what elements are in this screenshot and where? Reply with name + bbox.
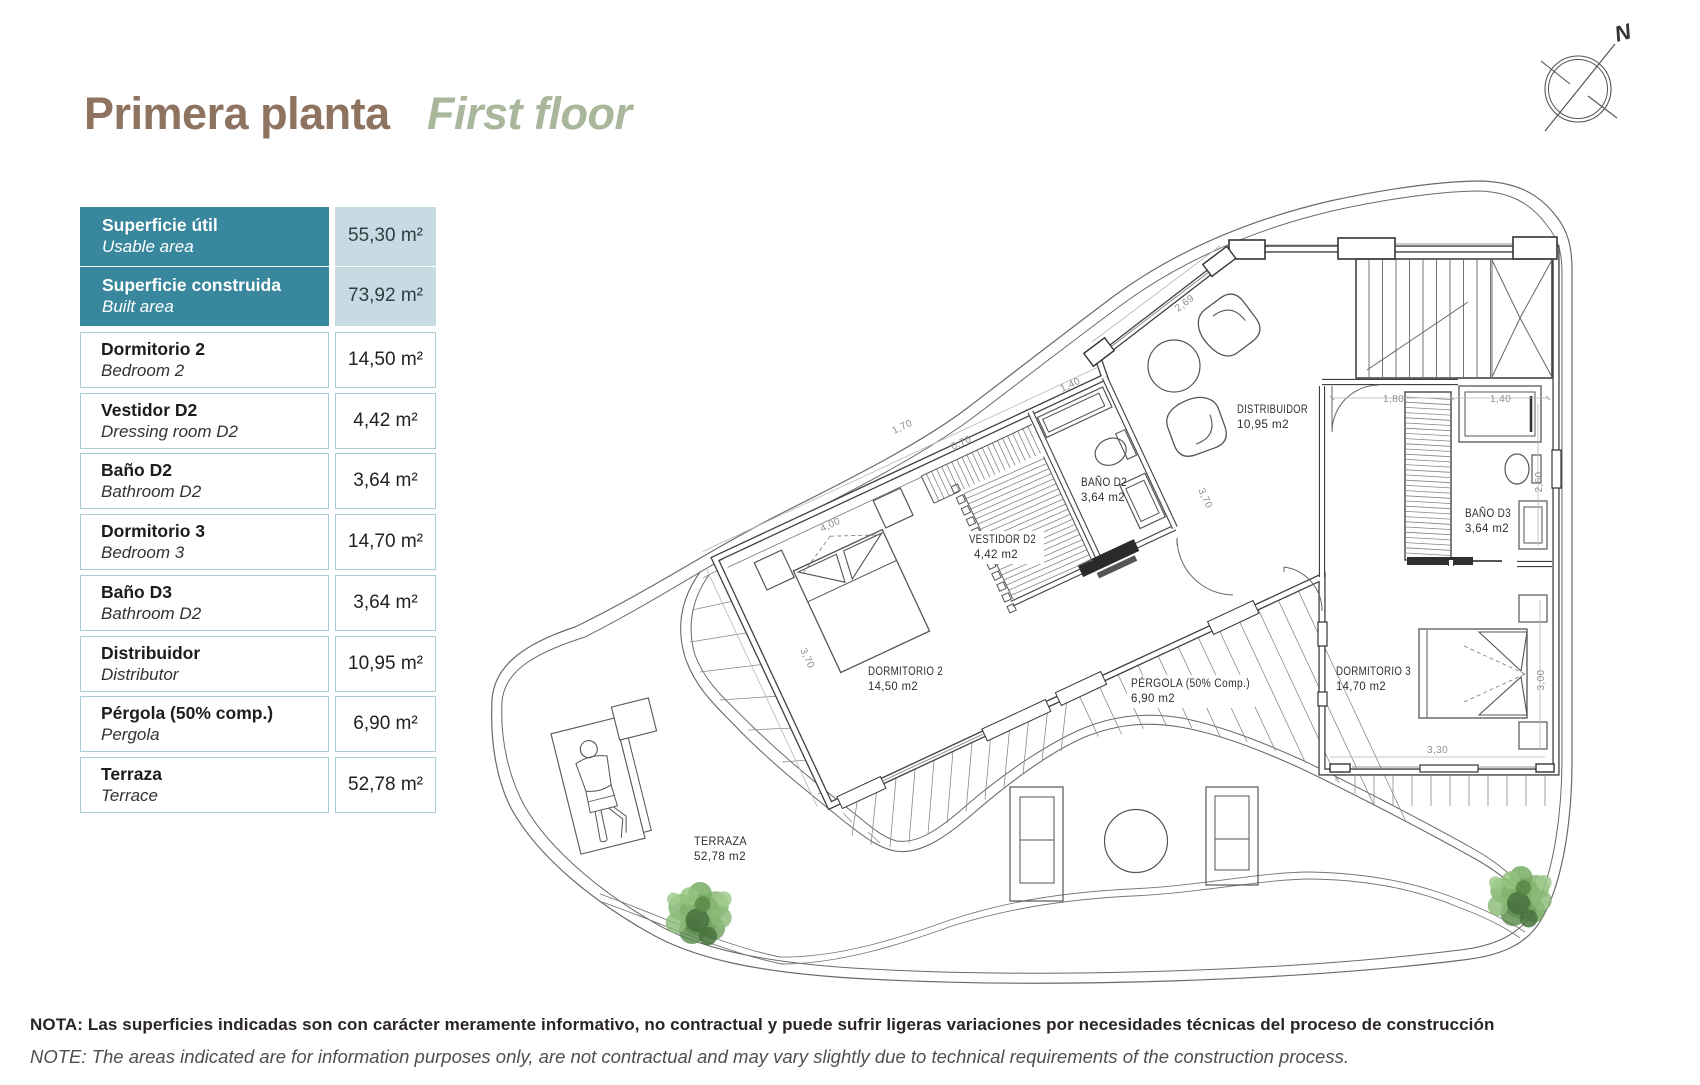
- svg-text:BAÑO D3: BAÑO D3: [1465, 506, 1511, 520]
- svg-text:VESTIDOR D2: VESTIDOR D2: [969, 532, 1036, 546]
- svg-text:4,00: 4,00: [819, 516, 843, 535]
- svg-text:3,30: 3,30: [1427, 745, 1448, 756]
- svg-text:DORMITORIO 3: DORMITORIO 3: [1336, 664, 1411, 678]
- svg-text:3,00: 3,00: [1536, 669, 1547, 690]
- svg-text:14,50 m2: 14,50 m2: [868, 679, 918, 693]
- svg-text:14,70 m2: 14,70 m2: [1336, 679, 1386, 693]
- svg-text:BAÑO D2: BAÑO D2: [1081, 475, 1127, 489]
- svg-text:1,70: 1,70: [891, 418, 915, 437]
- svg-text:0,70: 0,70: [950, 434, 974, 453]
- svg-text:1,80: 1,80: [1383, 394, 1404, 405]
- svg-text:3,64 m2: 3,64 m2: [1465, 521, 1509, 535]
- svg-text:DISTRIBUIDOR: DISTRIBUIDOR: [1237, 402, 1308, 416]
- svg-text:6,90 m2: 6,90 m2: [1131, 691, 1175, 705]
- svg-text:3,70: 3,70: [1195, 487, 1214, 511]
- svg-text:4,42 m2: 4,42 m2: [974, 547, 1018, 561]
- svg-text:52,78 m2: 52,78 m2: [694, 849, 746, 863]
- svg-text:3,64 m2: 3,64 m2: [1081, 490, 1125, 504]
- svg-text:DORMITORIO 2: DORMITORIO 2: [868, 664, 943, 678]
- svg-text:10,95 m2: 10,95 m2: [1237, 417, 1289, 431]
- svg-text:PÉRGOLA (50% Comp.): PÉRGOLA (50% Comp.): [1131, 675, 1250, 690]
- svg-text:TERRAZA: TERRAZA: [694, 834, 747, 848]
- svg-text:3,70: 3,70: [797, 647, 816, 671]
- svg-text:1,40: 1,40: [1490, 394, 1511, 405]
- svg-text:2,60: 2,60: [1534, 471, 1545, 492]
- svg-text:N: N: [1612, 18, 1635, 47]
